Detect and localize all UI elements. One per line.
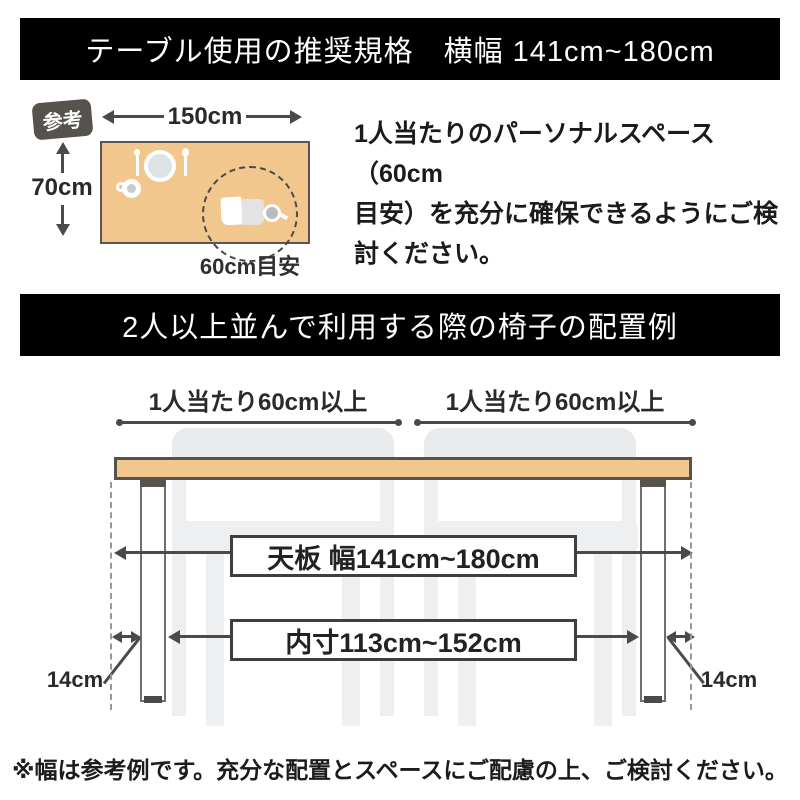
inner-width-box: 内寸113cm~152cm	[230, 619, 577, 661]
inner-width-label: 内寸113cm~152cm	[285, 621, 521, 660]
banner-middle: 2人以上並んで利用する際の椅子の配置例	[20, 294, 780, 356]
banner-top: テーブル使用の推奨規格 横幅 141cm~180cm	[20, 18, 780, 80]
dimension-line	[61, 153, 64, 173]
plate-inner	[148, 154, 172, 178]
edge-dashed-line-left	[110, 482, 112, 710]
leg-width-label-left: 14cm	[44, 667, 106, 693]
reference-badge-label: 参考	[41, 103, 83, 135]
banner-middle-title: 2人以上並んで利用する際の椅子の配置例	[122, 304, 678, 346]
dimension-line	[246, 115, 292, 118]
tabletop-width-box: 天板 幅141cm~180cm	[230, 535, 577, 577]
tabletop	[114, 457, 692, 480]
table-depth-label: 70cm	[30, 174, 94, 202]
personal-space-label: 60cm目安	[198, 249, 302, 281]
seat-width-label-left: 1人当たり60cm以上	[143, 382, 373, 417]
dimension-line	[112, 115, 164, 118]
intro-text-line: 討ください。	[354, 234, 794, 274]
seat-width-label-right: 1人当たり60cm以上	[440, 382, 670, 417]
intro-text-line: 1人当たりのパーソナルスペース（60cm	[354, 114, 794, 194]
intro-text-line: 目安）を充分に確保できるようにご検	[354, 194, 794, 234]
leg-width-label-right: 14cm	[698, 667, 760, 693]
infographic-canvas: テーブル使用の推奨規格 横幅 141cm~180cm 参考 150cm 70cm	[0, 0, 800, 800]
banner-top-title: テーブル使用の推奨規格 横幅 141cm~180cm	[85, 28, 714, 70]
intro-text: 1人当たりのパーソナルスペース（60cm 目安）を充分に確保できるようにご検 討…	[354, 114, 794, 274]
reference-badge: 参考	[31, 98, 93, 140]
tabletop-width-label: 天板 幅141cm~180cm	[267, 537, 539, 576]
arrow-right-icon	[290, 110, 302, 124]
table-width-label: 150cm	[158, 103, 252, 131]
leader-line	[103, 637, 141, 685]
edge-dashed-line-right	[690, 482, 692, 710]
arrow-down-icon	[56, 224, 70, 236]
footer-note: ※幅は参考例です。充分な配置とスペースにご配慮の上、ご検討ください。	[0, 751, 800, 785]
dimension-line	[61, 205, 64, 225]
